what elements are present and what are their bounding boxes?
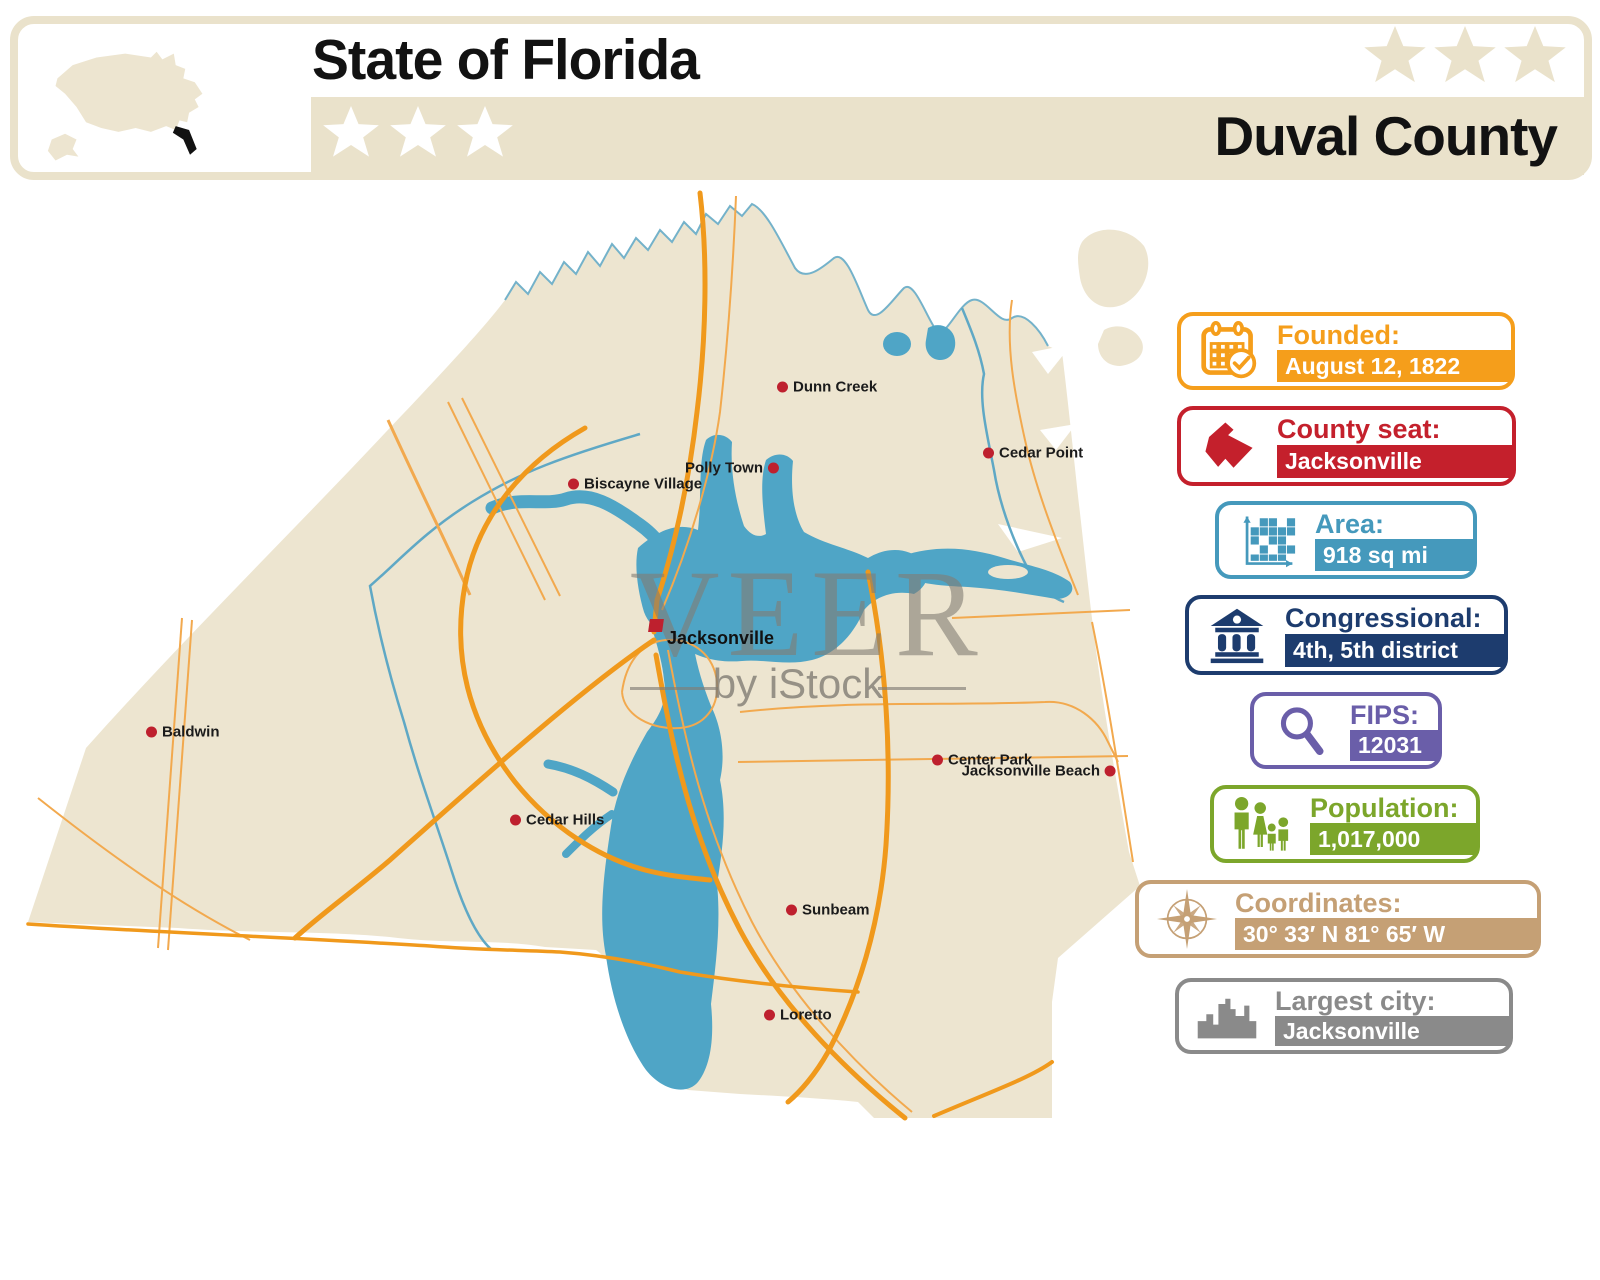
watermark-byline: by iStock	[698, 660, 898, 708]
town-marker: Dunn Creek	[777, 379, 877, 396]
watermark-line	[878, 687, 966, 690]
panel-label: FIPS:	[1350, 701, 1438, 730]
grid-chart-icon	[1219, 505, 1315, 575]
town-marker: Jacksonville Beach	[962, 763, 1116, 780]
watermark-brand: VEER	[630, 552, 986, 676]
town-label: Biscayne Village	[584, 476, 702, 493]
town-label: Baldwin	[162, 724, 220, 741]
town-dot-icon	[932, 755, 943, 766]
info-panel-congressional: Congressional: 4th, 5th district	[1185, 595, 1508, 675]
info-panel-county-seat: County seat: Jacksonville	[1177, 406, 1516, 486]
info-panel-fips: FIPS: 12031	[1250, 692, 1442, 769]
panel-label: Founded:	[1277, 321, 1511, 350]
city-marker: Jacksonville	[649, 619, 774, 649]
panel-label: Area:	[1315, 510, 1473, 539]
info-panel-population: Population: 1,017,000	[1210, 785, 1480, 863]
info-panel-area: Area: 918 sq mi	[1215, 501, 1477, 579]
panel-value: 30° 33′ N 81° 65′ W	[1235, 918, 1537, 950]
town-label: Dunn Creek	[793, 379, 877, 396]
info-panel-coordinates: Coordinates: 30° 33′ N 81° 65′ W	[1135, 880, 1541, 958]
panel-value: 1,017,000	[1310, 823, 1476, 855]
coastal-island	[1078, 230, 1148, 308]
town-dot-icon	[768, 463, 779, 474]
town-label: Jacksonville Beach	[962, 763, 1100, 780]
city-square-icon	[648, 619, 664, 632]
town-dot-icon	[777, 382, 788, 393]
bank-icon	[1189, 599, 1285, 671]
town-dot-icon	[510, 815, 521, 826]
town-marker: Cedar Point	[983, 445, 1083, 462]
panel-value: August 12, 1822	[1277, 350, 1511, 382]
panel-label: Coordinates:	[1235, 889, 1537, 918]
town-marker: Cedar Hills	[510, 812, 604, 829]
town-marker: Polly Town	[685, 460, 779, 477]
panel-value: 918 sq mi	[1315, 539, 1473, 571]
town-marker: Biscayne Village	[568, 476, 702, 493]
panel-label: Largest city:	[1275, 987, 1509, 1016]
panel-label: County seat:	[1277, 415, 1512, 444]
panel-value: 4th, 5th district	[1285, 634, 1504, 667]
infographic-page: State of Florida Duval County	[0, 0, 1600, 1280]
city-skyline-icon	[1179, 982, 1275, 1050]
town-label: Cedar Hills	[526, 812, 604, 829]
coastal-island	[1098, 326, 1143, 366]
town-label: Polly Town	[685, 460, 763, 477]
panel-value: Jacksonville	[1275, 1016, 1509, 1046]
town-label: Sunbeam	[802, 902, 870, 919]
panel-value: Jacksonville	[1277, 445, 1512, 478]
town-label: Loretto	[780, 1007, 832, 1024]
panel-value: 12031	[1350, 730, 1438, 761]
town-dot-icon	[1105, 766, 1116, 777]
town-label: Cedar Point	[999, 445, 1083, 462]
panel-label: Congressional:	[1285, 604, 1504, 633]
town-dot-icon	[146, 727, 157, 738]
magnifier-icon	[1254, 696, 1350, 765]
town-dot-icon	[786, 905, 797, 916]
info-panel-largest-city: Largest city: Jacksonville	[1175, 978, 1513, 1054]
calendar-icon	[1181, 316, 1277, 386]
panel-label: Population:	[1310, 794, 1476, 823]
lake	[883, 332, 911, 356]
county-map-icon	[1181, 410, 1277, 482]
town-marker: Sunbeam	[786, 902, 870, 919]
family-icon	[1214, 789, 1310, 859]
river-island	[988, 565, 1028, 579]
city-label: Jacksonville	[667, 628, 774, 649]
town-dot-icon	[568, 479, 579, 490]
town-dot-icon	[983, 448, 994, 459]
info-panel-founded: Founded: August 12, 1822	[1177, 312, 1515, 390]
compass-icon	[1139, 884, 1235, 954]
town-marker: Baldwin	[146, 724, 220, 741]
town-dot-icon	[764, 1010, 775, 1021]
town-marker: Loretto	[764, 1007, 832, 1024]
